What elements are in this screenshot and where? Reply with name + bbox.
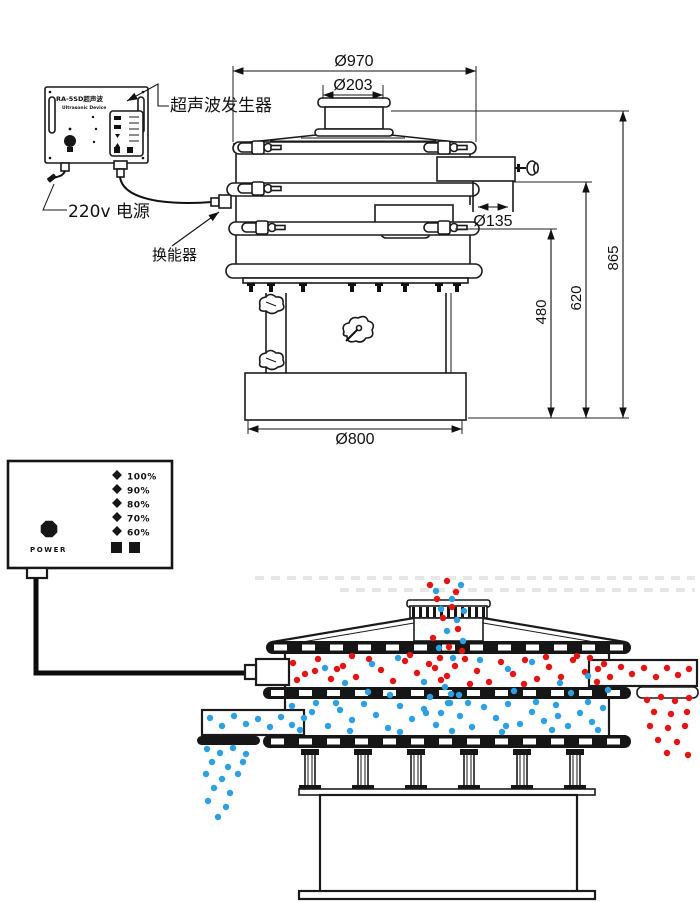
blue-particle xyxy=(477,657,483,663)
machine-base xyxy=(245,373,466,420)
side-view-drawing: RA-5SD超声波 Ultrasonic Device xyxy=(43,53,629,448)
red-particle xyxy=(686,666,692,672)
red-particle xyxy=(430,635,436,641)
red-particle xyxy=(651,709,657,715)
blue-particle xyxy=(313,700,319,706)
blue-particle xyxy=(235,771,241,777)
red-particle xyxy=(664,750,670,756)
blue-particle xyxy=(223,804,229,810)
power-level-label: 90% xyxy=(127,487,150,497)
blue-particle xyxy=(449,596,455,602)
blue-particle xyxy=(553,702,559,708)
red-particle xyxy=(629,671,635,677)
panel-button-right xyxy=(129,542,140,553)
fine-outlet-tray xyxy=(197,736,260,745)
blue-particle xyxy=(349,717,355,723)
blue-particle xyxy=(511,688,517,694)
blue-particle xyxy=(219,723,225,729)
generator-model-label: RA-5SD超声波 xyxy=(56,94,103,103)
sieve-machine-side-view xyxy=(226,98,538,420)
blue-particle xyxy=(395,655,401,661)
panel-button-right xyxy=(127,147,133,153)
blue-particle xyxy=(240,759,246,765)
upper-outlet xyxy=(437,157,515,181)
red-particle xyxy=(521,681,527,687)
red-particle xyxy=(522,657,528,663)
transducer-unit xyxy=(256,659,289,685)
blue-particle xyxy=(449,728,455,734)
blue-particle xyxy=(322,665,328,671)
blue-particle xyxy=(438,606,444,612)
red-particle xyxy=(315,656,321,662)
blue-particle xyxy=(409,716,415,722)
red-particle xyxy=(349,653,355,659)
blue-particle xyxy=(438,710,444,716)
red-particle xyxy=(674,739,680,745)
blue-particle xyxy=(493,715,499,721)
blue-particle xyxy=(215,814,221,820)
blue-particle xyxy=(342,680,348,686)
red-particle xyxy=(686,695,692,701)
red-particle xyxy=(607,674,613,680)
red-particle xyxy=(444,578,450,584)
deck-bolts xyxy=(247,283,461,292)
label-transducer: 换能器 xyxy=(152,246,197,264)
blue-particle xyxy=(243,751,249,757)
blue-particle xyxy=(333,700,339,706)
blue-particle xyxy=(460,638,466,644)
blue-particle xyxy=(301,715,307,721)
red-particle xyxy=(574,653,580,659)
base-bottom-flange xyxy=(299,891,595,899)
red-particle xyxy=(402,658,408,664)
blue-particle xyxy=(278,714,284,720)
blue-particle xyxy=(499,729,505,735)
red-particle xyxy=(534,676,540,682)
blue-particle xyxy=(255,716,261,722)
transducer-plug xyxy=(245,665,256,679)
cable-gland xyxy=(27,568,47,578)
blue-particle xyxy=(230,745,236,751)
blue-particle xyxy=(309,709,315,715)
blue-particle xyxy=(347,728,353,734)
blue-particle xyxy=(481,704,487,710)
blue-particle xyxy=(225,764,231,770)
blue-particle xyxy=(568,690,574,696)
red-particle xyxy=(353,674,359,680)
red-particle xyxy=(546,664,552,670)
red-particle xyxy=(684,709,690,715)
particles-lower_blue xyxy=(289,699,606,735)
blue-particle xyxy=(289,703,295,709)
blue-particle xyxy=(289,722,295,728)
power-socket xyxy=(61,163,69,171)
red-particle xyxy=(601,661,607,667)
blue-particle xyxy=(517,721,523,727)
red-particle xyxy=(407,652,413,658)
blue-particle xyxy=(243,721,249,727)
blue-particle xyxy=(397,729,403,735)
blue-particle xyxy=(585,699,591,705)
power-controller-box: POWER 100% 90% 80% 70% xyxy=(8,461,172,578)
blue-particle xyxy=(365,689,371,695)
blue-particle xyxy=(461,608,467,614)
red-particle xyxy=(340,663,346,669)
blue-particle xyxy=(423,710,429,716)
base-cylinder xyxy=(320,795,577,892)
blue-particle xyxy=(442,684,448,690)
blue-particle xyxy=(458,582,464,588)
dim-total-height: 865 xyxy=(605,245,622,270)
blue-particle xyxy=(211,785,217,791)
blue-particle xyxy=(231,713,237,719)
red-particle xyxy=(440,615,446,621)
blue-particle xyxy=(204,746,210,752)
red-particle xyxy=(587,655,593,661)
blue-particle xyxy=(505,701,511,707)
red-particle xyxy=(498,659,504,665)
power-knob-label: POWER xyxy=(30,546,67,554)
red-particle xyxy=(510,671,516,677)
blue-particle xyxy=(217,750,223,756)
blue-particle xyxy=(505,666,511,672)
red-particle xyxy=(453,589,459,595)
blue-particle xyxy=(469,724,475,730)
power-knob xyxy=(41,521,58,538)
blue-particle xyxy=(385,725,391,731)
transducer-cable xyxy=(120,177,212,203)
blue-particle xyxy=(529,659,535,665)
red-particle xyxy=(543,654,549,660)
blue-particle xyxy=(445,700,451,706)
red-particle xyxy=(595,666,601,672)
blue-particle xyxy=(207,715,213,721)
red-particle xyxy=(655,737,661,743)
blue-particle xyxy=(555,713,561,719)
red-particle xyxy=(462,656,468,662)
red-particle xyxy=(474,668,480,674)
red-particle xyxy=(455,626,461,632)
blue-particle xyxy=(209,759,215,765)
transducer-connector xyxy=(211,195,231,208)
generator-knob xyxy=(64,135,76,147)
blue-particle xyxy=(297,727,303,733)
red-particle xyxy=(644,697,650,703)
dim-top-diameter: Ø970 xyxy=(334,53,373,70)
red-particle xyxy=(647,723,653,729)
blue-particle xyxy=(433,588,439,594)
label-ultrasonic-generator: 超声波发生器 xyxy=(170,96,272,116)
blue-particle xyxy=(529,709,535,715)
red-particle xyxy=(675,672,681,678)
blue-particle xyxy=(600,705,606,711)
fine-outlet xyxy=(202,710,304,735)
blue-particle xyxy=(605,687,611,693)
handle-left xyxy=(49,97,55,133)
label-220v-power: 220v 电源 xyxy=(68,202,150,222)
red-particle xyxy=(452,663,458,669)
blue-particle xyxy=(533,699,539,705)
transducer-leader-line xyxy=(172,212,219,246)
dim-upper-outlet-height: 620 xyxy=(568,285,585,310)
blue-particle xyxy=(436,645,442,651)
inlet-flange xyxy=(318,98,390,107)
red-particle xyxy=(682,723,688,729)
red-particle xyxy=(294,677,300,683)
blue-particle xyxy=(448,691,454,697)
red-particle xyxy=(434,596,440,602)
blue-particle xyxy=(549,727,555,733)
red-particle xyxy=(459,648,465,654)
red-particle xyxy=(594,679,600,685)
red-particle xyxy=(444,673,450,679)
ultrasonic-generator-box: RA-5SD超声波 Ultrasonic Device xyxy=(45,87,148,177)
power-leader-line xyxy=(43,184,67,210)
red-particle xyxy=(449,604,455,610)
red-particle xyxy=(486,679,492,685)
blue-particle xyxy=(427,694,433,700)
red-particle xyxy=(664,665,670,671)
spring-clamp xyxy=(260,295,284,314)
dim-outlet-diameter: Ø135 xyxy=(473,213,512,230)
power-plug xyxy=(47,173,57,182)
blue-particle xyxy=(373,712,379,718)
blue-particle xyxy=(465,700,471,706)
red-particle xyxy=(685,752,691,758)
dim-inlet-diameter: Ø203 xyxy=(333,77,372,94)
red-particle xyxy=(328,676,334,682)
blue-particle xyxy=(325,723,331,729)
blue-particle xyxy=(421,679,427,685)
red-particle xyxy=(653,674,659,680)
motor-symbol xyxy=(343,317,373,342)
power-level-label: 60% xyxy=(127,529,150,539)
panel-button-left xyxy=(111,542,122,553)
blue-particle xyxy=(541,718,547,724)
transducer-power-cable xyxy=(36,578,246,673)
red-particle xyxy=(334,666,340,672)
base-deck-rim xyxy=(226,264,482,278)
generator-subtitle: Ultrasonic Device xyxy=(62,105,106,111)
blue-particle xyxy=(433,722,439,728)
red-particle xyxy=(641,665,647,671)
red-particle xyxy=(558,674,564,680)
dim-base-diameter: Ø800 xyxy=(335,431,374,448)
blue-particle xyxy=(557,680,563,686)
output-socket xyxy=(114,161,127,169)
blue-particle xyxy=(361,701,367,707)
blue-particle xyxy=(565,723,571,729)
blue-particle xyxy=(503,723,509,729)
blue-particle xyxy=(219,776,225,782)
red-particle xyxy=(467,681,473,687)
red-particle xyxy=(668,711,674,717)
red-particle xyxy=(290,660,296,666)
blue-particle xyxy=(397,703,403,709)
blue-particle xyxy=(267,724,273,730)
red-particle xyxy=(432,665,438,671)
inlet-cylinder xyxy=(325,107,383,129)
red-particle xyxy=(665,725,671,731)
ultrasonic-vibrating-sieve-diagram: RA-5SD超声波 Ultrasonic Device xyxy=(0,0,700,902)
blue-particle xyxy=(450,655,456,661)
blue-particle xyxy=(369,661,375,667)
blue-particle xyxy=(577,710,583,716)
screw-icon xyxy=(142,157,145,160)
working-principle-illustration: POWER 100% 90% 80% 70% xyxy=(8,461,698,899)
red-particle xyxy=(438,677,444,683)
red-particle xyxy=(390,678,396,684)
red-particle xyxy=(378,667,384,673)
red-particle xyxy=(437,655,443,661)
support-springs xyxy=(299,749,586,791)
red-particle xyxy=(672,698,678,704)
screw-icon xyxy=(49,157,52,160)
blue-particle xyxy=(456,692,462,698)
red-particle xyxy=(312,668,318,674)
dim-lower-outlet-height: 480 xyxy=(533,299,550,324)
red-particle xyxy=(414,670,420,676)
blue-particle xyxy=(203,771,209,777)
blue-particle xyxy=(457,713,463,719)
spring-clamp xyxy=(260,351,284,370)
red-particle xyxy=(618,664,624,670)
power-level-label: 100% xyxy=(127,473,157,483)
blue-particle xyxy=(595,727,601,733)
blue-particle xyxy=(227,790,233,796)
blue-particle xyxy=(454,617,460,623)
red-particle xyxy=(427,582,433,588)
screw-icon xyxy=(49,91,52,94)
diagram-canvas: RA-5SD超声波 Ultrasonic Device xyxy=(0,0,700,902)
blue-particle xyxy=(337,707,343,713)
red-particle xyxy=(426,661,432,667)
red-particle xyxy=(658,694,664,700)
blue-particle xyxy=(205,798,211,804)
blue-particle xyxy=(444,628,450,634)
red-particle xyxy=(302,671,308,677)
power-level-label: 70% xyxy=(127,515,150,525)
power-level-label: 80% xyxy=(127,501,150,511)
blue-particle xyxy=(387,692,393,698)
generator-control-panel xyxy=(110,111,143,156)
red-particle xyxy=(446,644,452,650)
panel-button-left xyxy=(114,147,120,153)
blue-particle xyxy=(585,673,591,679)
blue-particle xyxy=(589,719,595,725)
